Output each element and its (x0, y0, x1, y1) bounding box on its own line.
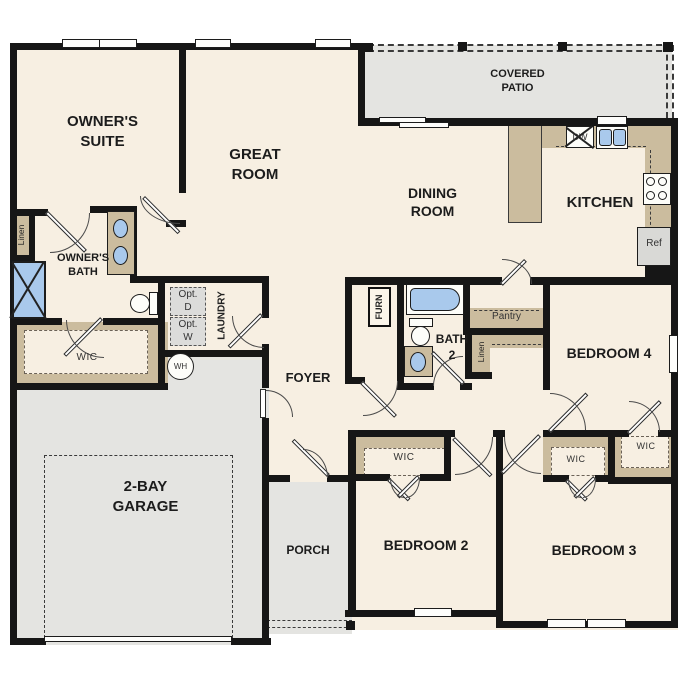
wall (595, 475, 608, 482)
patio-post (663, 42, 673, 52)
bedroom4-label: BEDROOM 4 (560, 344, 658, 362)
wall (262, 276, 269, 318)
bedroom2-wic-label: WIC (379, 452, 429, 465)
bedroom2-label: BEDROOM 2 (376, 536, 476, 554)
wall (444, 430, 451, 481)
wall (465, 372, 492, 379)
toilet-bowl (130, 294, 150, 313)
bedroom4-wic-label: WIC (623, 441, 669, 452)
laundry-label: LAUNDRY (217, 281, 228, 351)
bedroom3-window (547, 619, 586, 628)
wall (10, 638, 46, 645)
vanity-sink (410, 352, 426, 372)
patio-post (458, 42, 467, 51)
wall (610, 477, 671, 484)
wall (10, 43, 17, 645)
optional-washer-label: Opt. W (170, 319, 206, 344)
window (99, 39, 137, 48)
water-heater-label: WH (167, 353, 194, 380)
wall (358, 43, 365, 126)
vanity-sink (113, 219, 128, 238)
patio-dashed-right-inner (672, 45, 674, 118)
wall (179, 43, 186, 193)
furnace-label: FURN (374, 287, 384, 327)
window (62, 39, 100, 48)
porch-dashed-edge-outer (267, 620, 352, 621)
bedroom3-window (587, 619, 626, 628)
kitchen-window (597, 116, 627, 125)
patio-dashed-top-inner (368, 50, 672, 52)
burner (646, 177, 655, 186)
window (195, 39, 231, 48)
wall (463, 277, 470, 332)
bathtub-basin (410, 288, 460, 311)
burner (658, 191, 667, 200)
bedroom3-wic-label: WIC (553, 454, 599, 465)
wall (348, 430, 356, 617)
sink-basin (599, 129, 612, 146)
kitchen-island (508, 124, 542, 223)
owners-suite-label: OWNER'S SUITE (55, 112, 150, 151)
owners-bath-label: OWNER'S BATH (47, 251, 119, 280)
patio-dashed-right-outer (666, 45, 668, 118)
wall (29, 211, 35, 258)
burner (658, 177, 667, 186)
wall (496, 437, 503, 621)
owners-linen-label: Linen (16, 215, 26, 255)
patio-dashed-top-outer (368, 44, 672, 46)
garage-label: 2-BAY GARAGE (98, 477, 193, 516)
wall (671, 435, 678, 628)
sink-basin (613, 129, 626, 146)
refrigerator-label: Ref (637, 238, 671, 251)
wall (345, 277, 352, 383)
floor-plan: DW Ref Opt. D Opt. W WH FURN OWNER' (0, 0, 687, 687)
wall (10, 383, 168, 390)
wall (103, 318, 165, 325)
bedroom2-window (414, 608, 452, 617)
porch-label: PORCH (283, 543, 333, 559)
hall-shelf-band (490, 334, 543, 348)
sliding-patio-door (399, 122, 449, 128)
bedroom3-label: BEDROOM 3 (538, 541, 650, 559)
wall (608, 430, 615, 484)
optional-dryer-label: Opt. D (170, 289, 206, 314)
wall (158, 276, 165, 388)
wall (158, 276, 268, 283)
covered-patio-label: COVERED PATIO (470, 67, 565, 96)
porch-post (346, 621, 355, 630)
wall (356, 430, 455, 437)
burner (646, 191, 655, 200)
wall (397, 383, 434, 390)
wall (543, 430, 615, 437)
bedroom4-window (669, 335, 678, 373)
porch-dashed-edge-inner (267, 627, 352, 628)
foyer-label: FOYER (282, 370, 334, 387)
great-room-label: GREAT ROOM (205, 145, 305, 184)
wall (352, 474, 390, 481)
wall (493, 430, 505, 437)
owners-wic-label: WIC (62, 352, 112, 365)
window (315, 39, 351, 48)
toilet-tank (149, 292, 158, 315)
hall-shelf-dashed (492, 344, 541, 345)
dining-room-label: DINING ROOM (390, 184, 475, 220)
wall (262, 475, 290, 482)
kitchen-label: KITCHEN (560, 193, 640, 213)
toilet-bowl (411, 326, 430, 346)
pantry-label: Pantry (474, 311, 539, 324)
dishwasher-label: DW (566, 126, 594, 148)
wall (262, 418, 269, 645)
wall (397, 277, 404, 383)
patio-post (558, 42, 567, 51)
hall-linen-label: Linen (476, 332, 486, 372)
wall (10, 318, 62, 325)
bath2-label: BATH 2 (434, 332, 470, 363)
wall (130, 276, 165, 283)
wall (658, 430, 673, 437)
garage-door (44, 636, 232, 642)
